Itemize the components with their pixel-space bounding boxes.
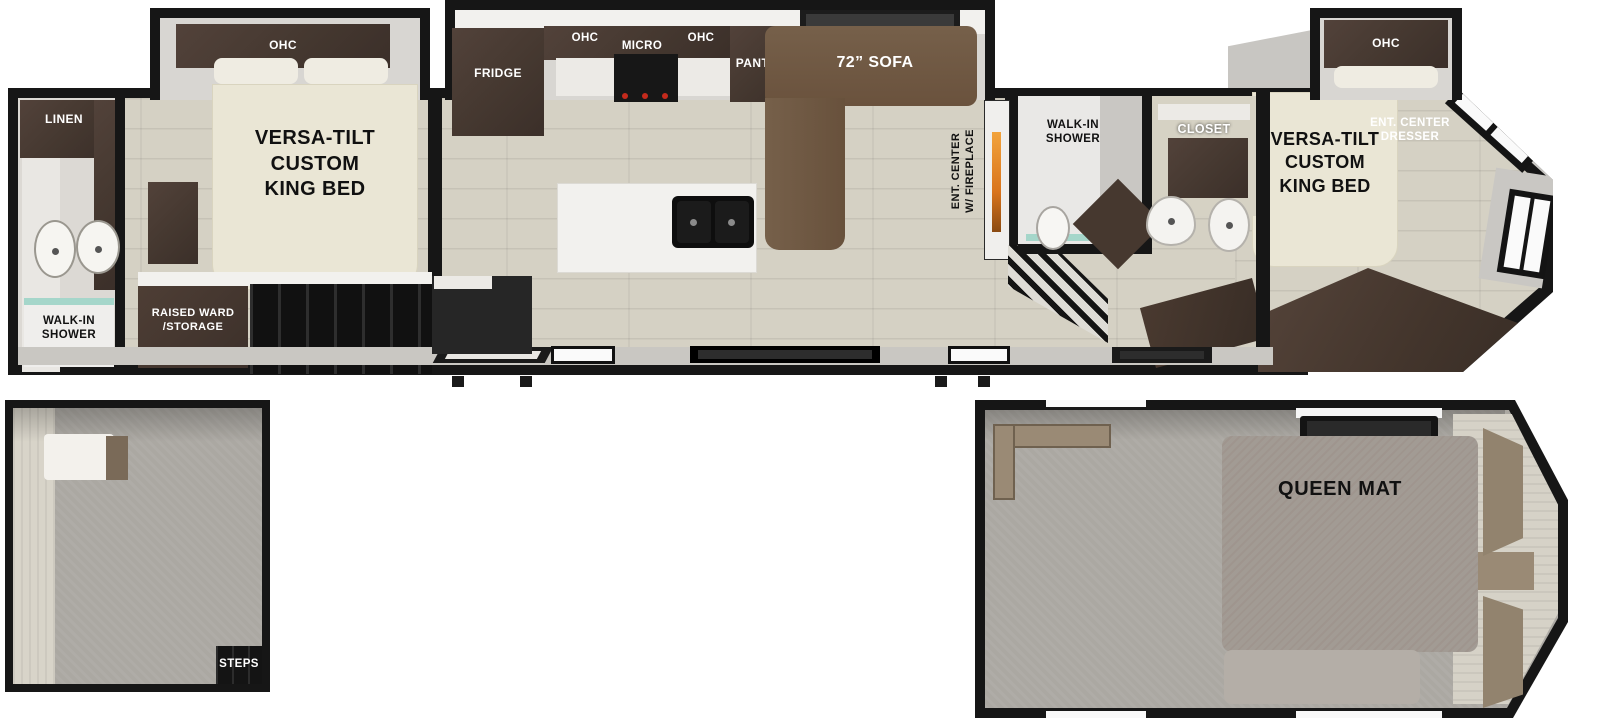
sink-drain [690, 219, 697, 226]
entry-step-foot [452, 376, 464, 387]
sink-drain [95, 246, 102, 253]
pillow [214, 58, 298, 84]
fireplace [992, 132, 1001, 232]
pillow [1334, 66, 1438, 88]
sink-drain [1168, 218, 1175, 225]
skylight-pane [1307, 421, 1431, 437]
ent-center-label: ENT. CENTER W/ FIREPLACE [950, 101, 980, 241]
loft-wood-panel [1483, 428, 1523, 556]
loft-railing [993, 424, 1015, 500]
counter-left [556, 58, 614, 96]
sofa-chaise [765, 98, 845, 250]
fridge-cabinet [452, 28, 544, 136]
pillow [304, 58, 388, 84]
left-loft: STEPS [5, 400, 270, 692]
micro-label: MICRO [610, 40, 674, 52]
window-pane [698, 350, 872, 359]
toilet [1036, 206, 1070, 250]
rear-king-bed-label: VERSA-TILT CUSTOM KING BED [212, 126, 418, 203]
right-loft: QUEEN MAT [975, 400, 1570, 718]
front-nose: VERSA-TILT CUSTOM KING BED ENT. CENTER D… [1235, 80, 1595, 380]
ohc-left-label: OHC [556, 32, 614, 44]
shower-glass [24, 298, 114, 305]
loft-steps-label: STEPS [216, 658, 262, 670]
rv-floorplan: VERSA-TILT CUSTOM KING BED ENT. CENTER D… [0, 0, 1600, 722]
double-sink [672, 196, 754, 248]
roof-piece [1228, 30, 1312, 88]
window-pane [806, 14, 954, 26]
ohc-right-label: OHC [672, 32, 730, 44]
loft-cabinet [44, 434, 114, 480]
mid-shower-label: WALK-IN SHOWER [1018, 118, 1128, 147]
kitchen-lower-counter [434, 276, 492, 289]
range [614, 54, 678, 102]
bottom-window [1112, 347, 1212, 363]
loft-cabinet-side [106, 436, 128, 480]
closet-label: CLOSET [1152, 122, 1256, 136]
closet-shelf [1158, 104, 1250, 120]
wall-opening [1046, 400, 1146, 407]
entry-step-foot [978, 376, 990, 387]
nightstand [148, 182, 198, 264]
front-ohc-label: OHC [1324, 36, 1448, 50]
window-pane [1120, 351, 1204, 359]
wall-opening [1046, 711, 1146, 718]
wall-opening [1296, 711, 1442, 718]
loft-wood-panel [1483, 596, 1523, 708]
rear-ohc-label: OHC [176, 38, 390, 52]
range-knob [642, 93, 648, 99]
bottom-window-long [690, 346, 880, 363]
entry-step-foot [520, 376, 532, 387]
rear-bath: LINEN WALK-IN SHOWER [8, 88, 125, 375]
sink-drain [52, 248, 59, 255]
closet-cabinet [1168, 138, 1248, 198]
mattress-foot [1224, 650, 1420, 704]
entry-step-foot [935, 376, 947, 387]
wall-bedroom-living [428, 88, 442, 280]
raised-ward-label: RAISED WARD /STORAGE [138, 306, 248, 335]
ent-center-dresser-label: ENT. CENTER DRESSER [1330, 116, 1490, 145]
sink-drain [1226, 222, 1233, 229]
wall-bath-frontbedroom [1256, 88, 1270, 365]
rear-shower-label: WALK-IN SHOWER [22, 314, 116, 343]
sink-drain [728, 219, 735, 226]
sofa-label: 72” SOFA [790, 54, 960, 72]
entry-door [948, 346, 1010, 364]
range-knob [622, 93, 628, 99]
bottom-wall-band [18, 347, 1273, 365]
entry-door [551, 346, 615, 364]
fridge-label: FRIDGE [452, 66, 544, 80]
range-knob [662, 93, 668, 99]
queen-mattress [1222, 436, 1478, 652]
queen-mat-label: QUEEN MAT [1230, 478, 1450, 501]
